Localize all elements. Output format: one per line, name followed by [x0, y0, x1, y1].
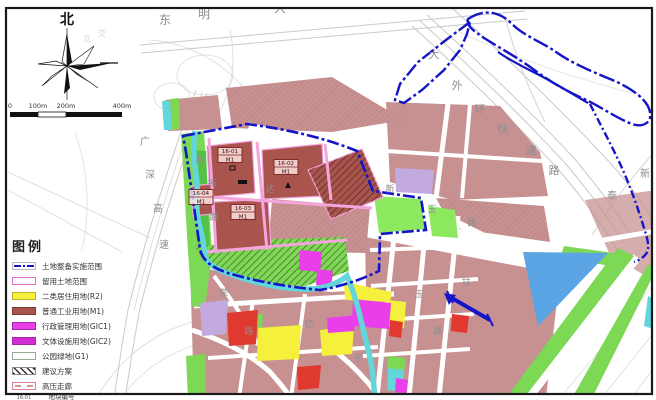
parcel-gic [395, 378, 408, 394]
road-label: 速 [526, 144, 537, 157]
plot-code-sample: 16-01M1 [12, 396, 36, 400]
parcel-red [297, 365, 321, 390]
road-label: 速 [159, 239, 169, 251]
legend-item-label: 地块编号用地性质代码 [42, 394, 81, 400]
parcel-green [374, 196, 425, 233]
road-label: 路 [467, 217, 476, 229]
legend-item: 土地整备实施范围 [12, 261, 160, 271]
road-label: 亿 [304, 318, 313, 330]
legend-list: 土地整备实施范围留用土地范围二类居住用地(R2)普通工业用地(M1)行政管理用地… [12, 261, 160, 400]
road-label: 路 [549, 164, 560, 177]
scale-bar-labels: 0100m200m400m [8, 102, 131, 110]
scale-bar-segment [66, 112, 122, 117]
boundary-inner-line [498, 52, 588, 103]
legend-item-label: 文体设施用地(GIC2) [42, 336, 111, 347]
scale-bar: 0100m200m400m [8, 102, 131, 117]
legend-item: 行政管理用地(GIC1) [12, 321, 160, 331]
scale-bar-segment [10, 112, 38, 117]
legend-panel: 图例 土地整备实施范围留用土地范围二类居住用地(R2)普通工业用地(M1)行政管… [12, 236, 160, 400]
parcel-label-16-03: 16-03M1 [231, 205, 255, 221]
legend-item-label: 二类居住用地(R2) [42, 291, 103, 302]
legend-item: 高压走廊 [12, 381, 160, 391]
road-label: 大 [429, 47, 440, 61]
road-label: 高 [153, 202, 163, 215]
road-label: 东 [353, 352, 362, 364]
road-label: 达 [265, 183, 274, 195]
road-label: 荣 [219, 287, 228, 299]
road-label: 新 [385, 183, 394, 195]
svg-text:M1: M1 [197, 200, 206, 206]
parcel-label-16-02: 16-02M1 [274, 160, 298, 176]
parcel-red [451, 314, 469, 333]
parcel-label-16-01: 16-01M1 [218, 148, 242, 164]
legend-item-label: 公园绿地(G1) [42, 351, 88, 362]
road-label: 玉 [427, 204, 436, 215]
legend-item-label: 高压走廊 [42, 381, 72, 392]
legend-item: 公园绿地(G1) [12, 351, 160, 361]
legend-swatch-r2 [12, 292, 36, 300]
road-label: 立 [83, 33, 91, 43]
road-label: 交 [98, 28, 106, 38]
legend-item: 16-01M1地块编号用地性质代码 [12, 396, 160, 400]
road-label: 路 [209, 211, 218, 223]
legend-swatch-gic2 [12, 337, 36, 345]
road-label: 拓 [207, 177, 216, 189]
legend-item: 建议方案 [12, 366, 160, 376]
road-label: 快 [498, 123, 509, 136]
scale-bar-label: 400m [113, 102, 132, 110]
legend-swatch-proposal [12, 367, 36, 375]
legend-item: 文体设施用地(GIC2) [12, 336, 160, 346]
svg-text:16-02: 16-02 [278, 161, 294, 167]
legend-item-label: 土地整备实施范围 [42, 261, 102, 272]
compass: 北 [38, 12, 118, 100]
scale-bar-label: 0 [8, 102, 12, 110]
scale-bar-segment [38, 112, 66, 117]
road-label: 路 [244, 325, 253, 337]
legend-item: 二类居住用地(R2) [12, 291, 160, 301]
compass-rose-icon [38, 34, 118, 94]
svg-text:M1: M1 [282, 170, 291, 176]
parcel-r2 [257, 325, 301, 361]
svg-text:M1: M1 [226, 158, 235, 164]
parcel-red [389, 320, 403, 338]
legend-item-label: 建议方案 [42, 366, 72, 377]
road-label: 广 [140, 136, 150, 148]
legend-item: 留用土地范围 [12, 276, 160, 286]
parcel-green [186, 354, 206, 398]
legend-swatch-hv [12, 382, 36, 390]
marker-bar [238, 180, 247, 184]
parcel-gic [299, 250, 322, 272]
road-label: 新 [195, 154, 204, 166]
legend-swatch-m1 [12, 307, 36, 315]
legend-swatch-gic1 [12, 322, 36, 330]
parcel-label-16-04: 16-04M1 [189, 190, 213, 206]
legend-swatch-boundary [12, 262, 36, 270]
svg-text:M1: M1 [239, 215, 248, 221]
road-label: 东 [159, 13, 171, 27]
svg-text:16-03: 16-03 [235, 206, 252, 212]
road-label: 新 [640, 167, 650, 180]
parcel-lavender [395, 168, 434, 194]
legend-title: 图例 [12, 236, 160, 255]
road-label: 玉 [414, 289, 423, 300]
stream-patch [644, 296, 656, 330]
legend-item-label: 留用土地范围 [42, 276, 87, 287]
legend-swatch-g1 [12, 352, 36, 360]
parcel-gic [327, 315, 356, 333]
road-label: 甘 [461, 276, 470, 288]
compass-north-label: 北 [60, 12, 74, 28]
road-label: 深 [145, 169, 155, 181]
road-label: 路 [433, 325, 442, 337]
svg-text:16-04: 16-04 [193, 191, 210, 197]
legend-item: 普通工业用地(M1) [12, 306, 160, 316]
planning-map-image: 东明大大外环快速路新泰广深高速新拓路达新玉路玉路甘荣路亿东立交 16-01M11… [0, 0, 656, 400]
scale-bar-label: 100m [29, 102, 48, 110]
road-label: 泰 [607, 189, 617, 202]
parcel-lavender [200, 300, 228, 336]
road-label: 环 [475, 103, 486, 116]
legend-item-label: 行政管理用地(GIC1) [42, 321, 111, 332]
road-label: 外 [452, 79, 463, 92]
legend-item-label: 普通工业用地(M1) [42, 306, 104, 317]
legend-swatch-reserved [12, 277, 36, 285]
svg-text:16-01: 16-01 [222, 149, 239, 155]
scale-bar-label: 200m [57, 102, 76, 110]
